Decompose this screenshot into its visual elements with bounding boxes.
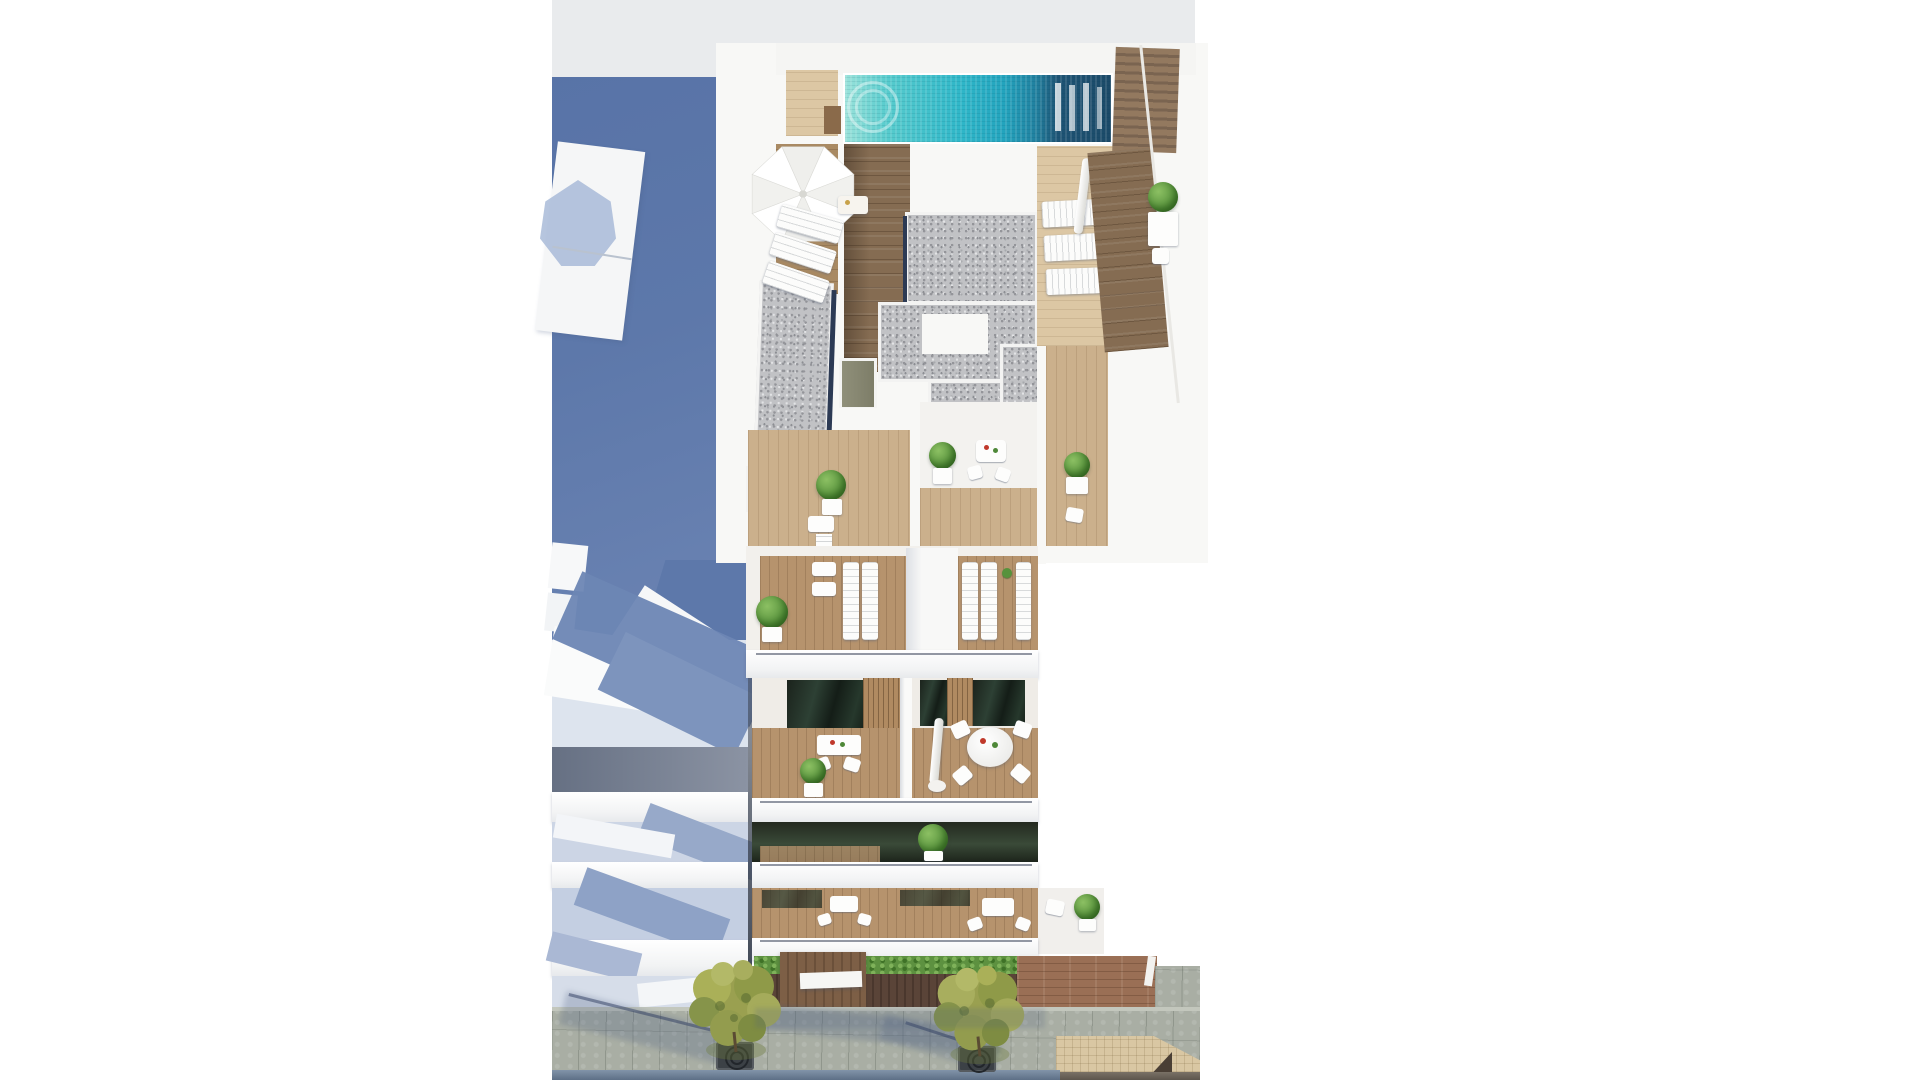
sky-band xyxy=(552,0,1195,43)
street-tree xyxy=(668,946,798,1066)
rooftop-pool xyxy=(843,73,1113,144)
terrace-lounger xyxy=(862,562,878,640)
gravel-roof-left-strip xyxy=(754,281,834,449)
terrace-plant xyxy=(929,442,956,469)
neighbor-building xyxy=(552,500,752,1010)
round-table xyxy=(967,727,1013,767)
terrace-lounger xyxy=(1016,562,1031,640)
terrace-lounger xyxy=(962,562,978,640)
terrace-lounger xyxy=(843,562,859,640)
sky-band-step2 xyxy=(552,66,716,77)
render-canvas xyxy=(0,0,1920,1080)
balcony-floor xyxy=(752,678,1038,800)
facade-shadow xyxy=(755,1008,1045,1028)
gravel-roof-main xyxy=(905,212,1038,304)
bar-counter xyxy=(838,196,868,214)
deck-bench xyxy=(824,106,841,134)
bistro-table xyxy=(976,440,1006,462)
terrace-lounger xyxy=(981,562,997,640)
roof-door xyxy=(839,358,877,410)
